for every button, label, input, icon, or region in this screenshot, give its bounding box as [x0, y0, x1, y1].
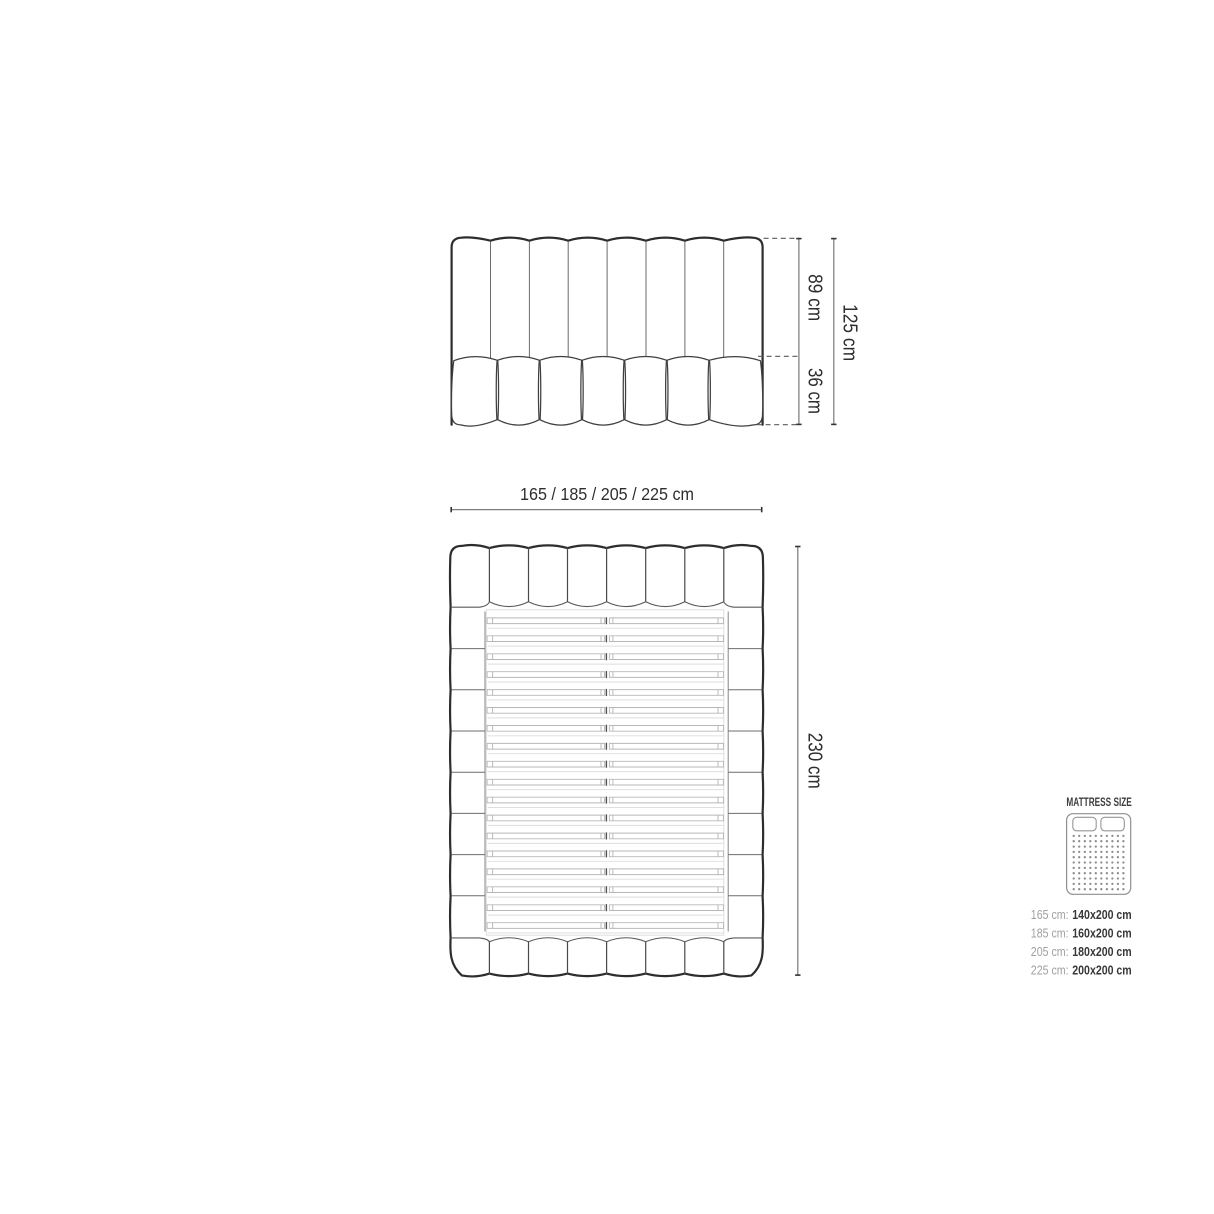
svg-text:89 cm: 89 cm [803, 274, 825, 321]
svg-text:125 cm: 125 cm [838, 304, 860, 361]
svg-text:165 cm:: 165 cm: [1031, 907, 1069, 922]
svg-text:230 cm: 230 cm [804, 733, 826, 789]
svg-text:180x200 cm: 180x200 cm [1072, 944, 1131, 959]
svg-text:185 cm:: 185 cm: [1031, 926, 1069, 941]
svg-text:140x200 cm: 140x200 cm [1072, 907, 1131, 922]
svg-text:225 cm:: 225 cm: [1031, 963, 1069, 978]
svg-text:200x200 cm: 200x200 cm [1072, 963, 1131, 978]
svg-text:205 cm:: 205 cm: [1031, 944, 1069, 959]
svg-text:MATTRESS SIZE: MATTRESS SIZE [1066, 795, 1131, 809]
svg-text:165 / 185 / 205 / 225 cm: 165 / 185 / 205 / 225 cm [520, 484, 694, 504]
svg-text:160x200 cm: 160x200 cm [1072, 926, 1131, 941]
svg-text:36 cm: 36 cm [803, 368, 825, 414]
